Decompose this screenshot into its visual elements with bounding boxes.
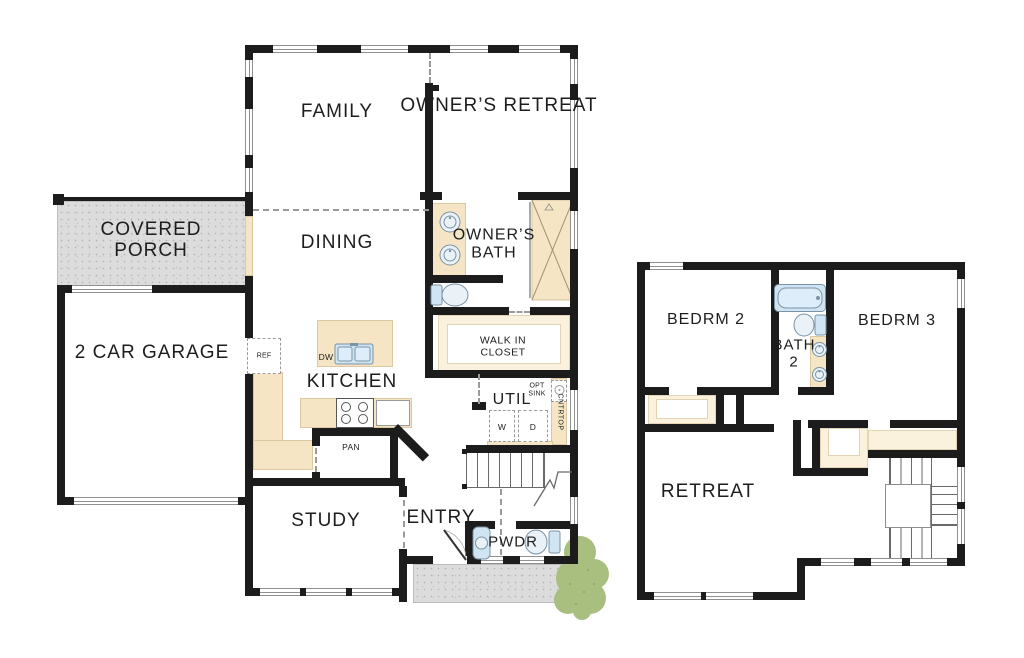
wall bbox=[466, 445, 555, 453]
garage-door bbox=[74, 497, 238, 505]
bath2-line1: BATH bbox=[773, 338, 816, 355]
window bbox=[957, 467, 965, 502]
stair-newel bbox=[462, 484, 467, 489]
room-label-util: UTIL bbox=[493, 391, 532, 409]
room-label-entry: ENTRY bbox=[406, 507, 475, 529]
owners-bath-line2: BATH bbox=[453, 244, 536, 262]
room-label-retreat: RETREAT bbox=[661, 481, 755, 503]
util-door-dashed bbox=[478, 374, 480, 404]
wall bbox=[716, 395, 724, 424]
wall bbox=[808, 420, 868, 428]
wall bbox=[245, 478, 405, 486]
kitchen-sink-icon bbox=[334, 343, 374, 365]
wall bbox=[697, 387, 771, 395]
stair-rail bbox=[931, 458, 932, 558]
wall bbox=[245, 483, 253, 596]
stair-ledge bbox=[868, 430, 957, 450]
wall bbox=[399, 486, 407, 497]
window bbox=[450, 45, 488, 53]
pantry-door-dashed bbox=[315, 448, 317, 472]
walk-in-closet-line1: WALK IN bbox=[480, 335, 526, 347]
window bbox=[957, 509, 965, 544]
window bbox=[570, 211, 578, 249]
wall bbox=[868, 450, 957, 458]
window bbox=[654, 592, 701, 600]
toilet-icon bbox=[430, 282, 470, 308]
room-label-owners-retreat: OWNER’S RETREAT bbox=[400, 95, 597, 117]
window bbox=[570, 390, 578, 430]
label-cntrtop: CNTRTOP bbox=[557, 393, 564, 430]
room-label-bedrm3: BEDRM 3 bbox=[858, 312, 936, 330]
room-label-walk-in-closet: WALK INCLOSET bbox=[480, 335, 526, 358]
label-dw: DW bbox=[319, 352, 334, 362]
stair-landing bbox=[885, 484, 931, 528]
window bbox=[821, 558, 854, 566]
window bbox=[570, 59, 578, 84]
stair-newel bbox=[462, 449, 467, 454]
wall bbox=[390, 436, 398, 483]
bedrm2-closet-shelf bbox=[656, 399, 708, 419]
window bbox=[72, 285, 152, 293]
room-label-kitchen: KITCHEN bbox=[307, 371, 397, 393]
window bbox=[273, 45, 317, 53]
room-separator-dashed bbox=[253, 209, 429, 211]
wall bbox=[645, 387, 669, 395]
opt-sink-line2: SINK bbox=[528, 390, 545, 398]
floor-plan-canvas: FAMILY OWNER’S RETREAT COVEREDPORCH DINI… bbox=[0, 0, 1024, 658]
porch-door-opening bbox=[245, 216, 253, 276]
window bbox=[706, 592, 753, 600]
window bbox=[520, 556, 544, 564]
opening-dashed bbox=[429, 53, 431, 83]
wall bbox=[518, 192, 578, 200]
wall bbox=[57, 285, 65, 505]
wall bbox=[643, 424, 774, 432]
window bbox=[260, 588, 300, 596]
label-washer: W bbox=[498, 422, 506, 432]
window bbox=[957, 279, 965, 308]
covered-porch-line2: PORCH bbox=[101, 241, 202, 262]
wall bbox=[430, 370, 578, 378]
stair-break-line bbox=[530, 470, 574, 508]
wall bbox=[312, 436, 320, 446]
toilet-icon bbox=[792, 312, 828, 338]
window bbox=[245, 168, 253, 192]
bath2-line2: 2 bbox=[773, 354, 816, 371]
room-label-family: FAMILY bbox=[301, 101, 373, 123]
label-ref: REF bbox=[257, 353, 272, 360]
staircase-turn bbox=[931, 486, 957, 526]
window bbox=[519, 45, 560, 53]
window bbox=[910, 558, 947, 566]
room-label-garage: 2 CAR GARAGE bbox=[75, 342, 230, 364]
stove-icon bbox=[336, 398, 374, 428]
room-label-dining: DINING bbox=[301, 232, 374, 254]
wall bbox=[797, 558, 805, 600]
window bbox=[361, 45, 408, 53]
room-label-bath2: BATH2 bbox=[773, 338, 816, 371]
label-opt-sink: OPTSINK bbox=[528, 382, 545, 397]
wall bbox=[637, 262, 965, 270]
window bbox=[245, 109, 253, 155]
covered-porch-line1: COVERED bbox=[101, 220, 202, 241]
room-label-covered-porch: COVEREDPORCH bbox=[101, 220, 202, 262]
room-label-study: STUDY bbox=[291, 510, 360, 532]
counter-appliance-space bbox=[376, 400, 410, 426]
wall bbox=[570, 310, 578, 563]
hall-closet-shelf bbox=[828, 428, 860, 456]
porch-edge bbox=[57, 197, 248, 201]
wall bbox=[798, 387, 834, 395]
wall bbox=[433, 85, 439, 91]
wall bbox=[890, 420, 957, 428]
room-label-owners-bath: OWNER’SBATH bbox=[453, 226, 536, 261]
bathtub-icon bbox=[774, 284, 826, 312]
wall bbox=[553, 445, 578, 453]
wall bbox=[245, 276, 253, 338]
wall bbox=[312, 428, 400, 436]
window bbox=[245, 60, 253, 77]
cased-opening-dashed bbox=[403, 500, 405, 548]
label-dryer: D bbox=[530, 422, 536, 432]
room-label-pwdr: PWDR bbox=[488, 534, 538, 551]
porch-post bbox=[53, 194, 64, 205]
wall bbox=[812, 468, 868, 476]
shower bbox=[529, 200, 573, 302]
wall bbox=[420, 192, 442, 200]
walk-in-closet-line2: CLOSET bbox=[480, 347, 526, 359]
room-label-bedrm2: BEDRM 2 bbox=[667, 311, 745, 329]
wall bbox=[736, 395, 744, 424]
wall bbox=[425, 307, 509, 315]
window bbox=[650, 262, 683, 270]
wall bbox=[245, 211, 253, 216]
door-opening-dashed bbox=[509, 311, 530, 313]
owners-bath-line1: OWNER’S bbox=[453, 226, 536, 244]
label-pan: PAN bbox=[342, 442, 360, 452]
kitchen-counter-bottom bbox=[253, 440, 313, 470]
window bbox=[352, 588, 392, 596]
opt-sink-line1: OPT bbox=[528, 382, 545, 390]
window bbox=[871, 558, 902, 566]
window bbox=[306, 588, 346, 596]
